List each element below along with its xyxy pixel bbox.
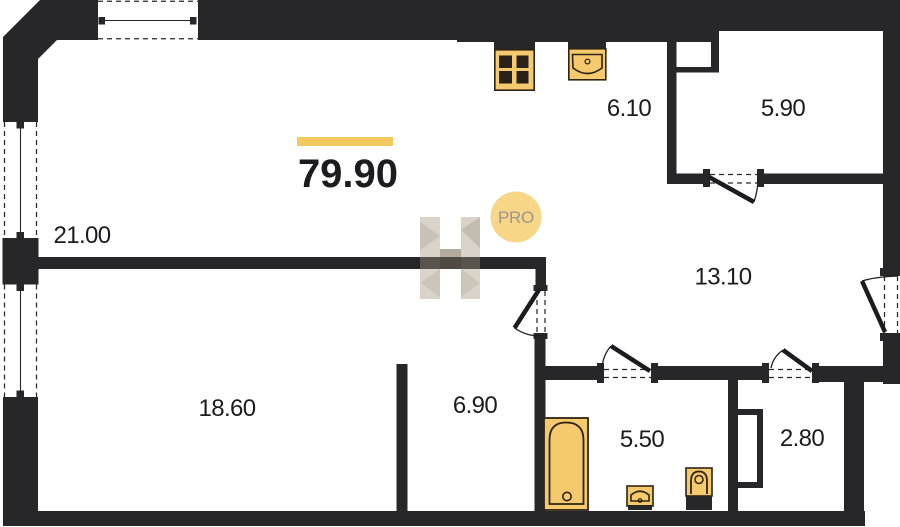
svg-text:2.80: 2.80 — [780, 425, 825, 452]
svg-text:PRO: PRO — [498, 208, 534, 227]
svg-text:6.10: 6.10 — [607, 95, 652, 122]
svg-text:5.90: 5.90 — [761, 95, 806, 122]
svg-text:13.10: 13.10 — [694, 264, 751, 291]
svg-text:79.90: 79.90 — [298, 152, 398, 196]
svg-text:18.60: 18.60 — [198, 395, 255, 422]
svg-text:21.00: 21.00 — [53, 222, 110, 249]
svg-text:5.50: 5.50 — [620, 426, 665, 453]
svg-text:6.90: 6.90 — [453, 392, 498, 419]
